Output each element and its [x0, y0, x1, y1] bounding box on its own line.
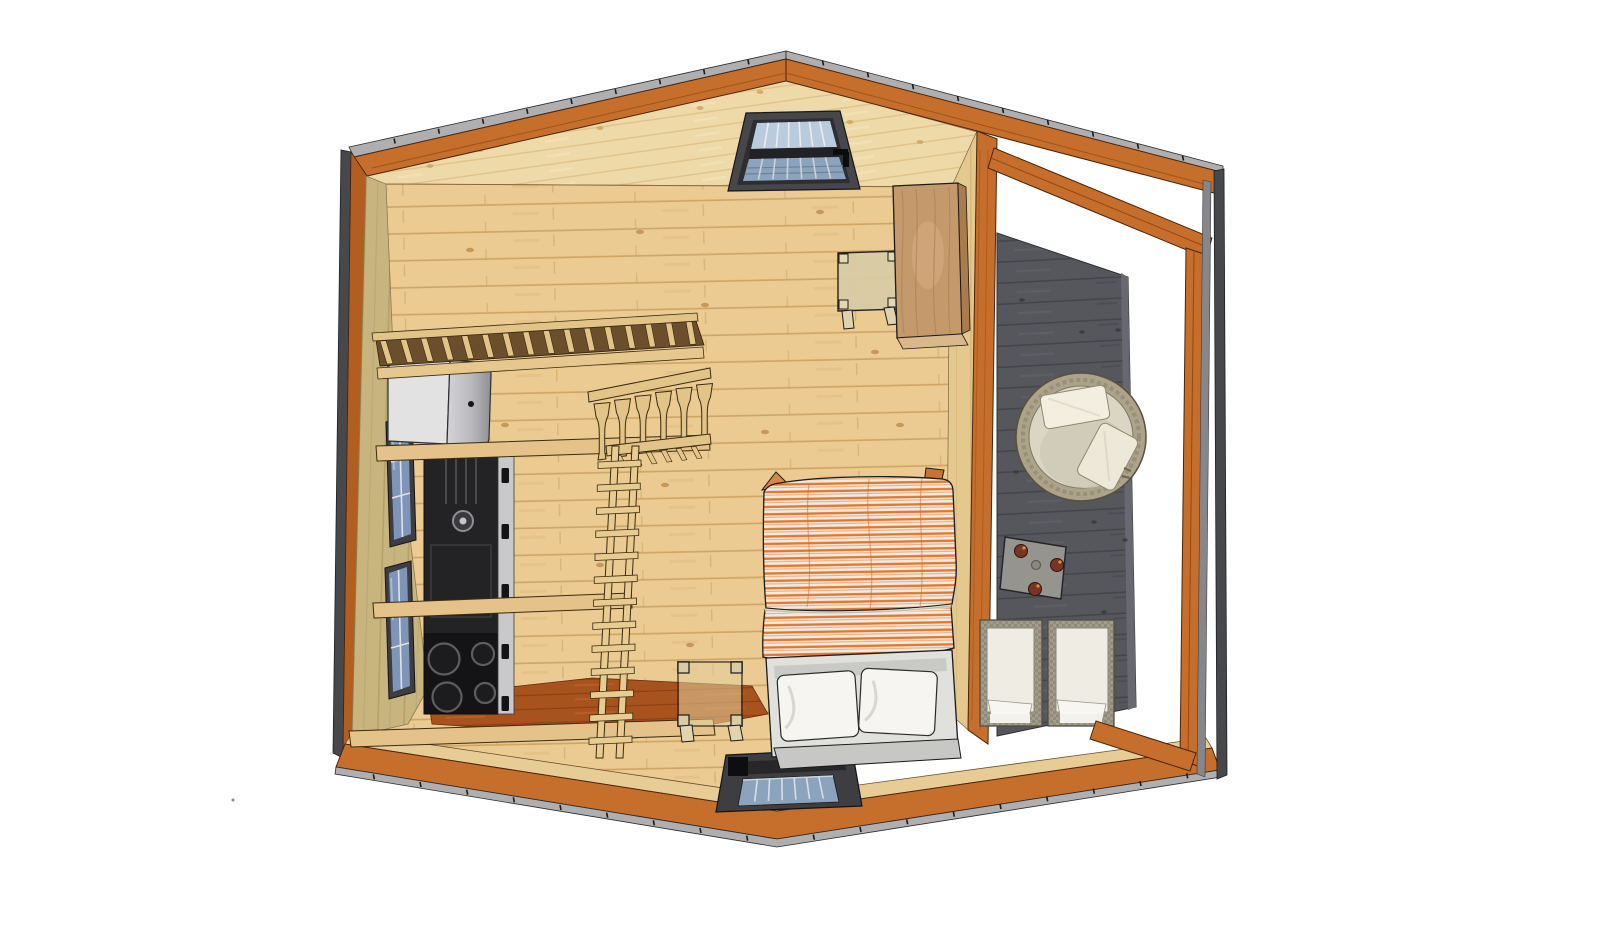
left-window-lower [385, 561, 415, 699]
drawer-handle [502, 468, 510, 483]
roof-tick [860, 827, 861, 832]
roof-tick [1138, 144, 1139, 149]
roof-tick [527, 109, 528, 114]
burner [429, 644, 460, 675]
plank-knot [816, 210, 824, 214]
cabin-floorplan-svg: Gable skylight window [0, 0, 1600, 931]
roof-tick [1140, 781, 1141, 786]
roof-tick [607, 813, 608, 818]
roof-tick [1183, 156, 1184, 161]
range-side-strip [498, 452, 514, 714]
roof-tick [1047, 796, 1048, 801]
plank-knot [701, 303, 709, 307]
deck-table: Deck side table with burner knobs [1000, 537, 1066, 599]
plank-knot [501, 423, 509, 427]
deck-knot [1019, 298, 1025, 302]
roof-tick [483, 119, 484, 124]
knob-pointer [1036, 584, 1039, 587]
roof-tick [438, 129, 439, 134]
deck-knot [1079, 330, 1085, 334]
bench-pillow-left [777, 670, 859, 741]
plank-knot [847, 120, 854, 124]
roof-tick [394, 139, 395, 144]
burner [433, 683, 462, 712]
bench-pillow-right [858, 668, 937, 736]
sink-drain [460, 518, 467, 525]
wardrobe-cabinet: Wardrobe cabinet [893, 183, 970, 349]
plank-knot [896, 423, 904, 427]
plank-knot [871, 350, 879, 354]
floorplan-render: Gable skylight window [0, 0, 1600, 931]
roof-tick [467, 790, 468, 795]
roof-tick [700, 828, 701, 833]
table-foot [680, 725, 694, 742]
plank-knot [636, 230, 644, 234]
roof-tick [823, 60, 824, 65]
burner [475, 683, 495, 703]
roof-tick [1187, 773, 1188, 778]
lounger-left [980, 620, 1042, 726]
bed: Double bed with orange striped duvet Hea… [762, 468, 961, 769]
roof-tick [953, 812, 954, 817]
deck-knot [1091, 520, 1097, 524]
lounger-cushion [987, 628, 1034, 712]
stray-dot [232, 799, 235, 802]
lounger-foot-cushion [990, 714, 1030, 723]
table-leg [678, 715, 689, 726]
roof-tick [513, 797, 514, 802]
roof-tick [659, 79, 660, 84]
gable-skylight-window: Gable skylight window [728, 111, 860, 191]
table-knob [1015, 545, 1028, 558]
roof-tick [907, 819, 908, 824]
deck-knot [1101, 610, 1107, 614]
roof-tick [571, 99, 572, 104]
range-unit [424, 452, 514, 714]
plank-knot [597, 126, 604, 130]
burner [472, 643, 494, 665]
table-leg [678, 662, 689, 673]
plank-knot [697, 106, 704, 110]
roof-tick [1000, 804, 1001, 809]
plank-knot [917, 140, 924, 144]
plank-knot [686, 643, 694, 647]
skylight-mid-rail [749, 147, 839, 159]
roof-tick [653, 820, 654, 825]
plank-knot [427, 164, 434, 168]
roof-tick [1003, 108, 1004, 113]
drawer-handle [502, 644, 510, 659]
knob-pointer [1058, 560, 1061, 563]
desk-leg [839, 300, 848, 309]
plank-knot [466, 248, 474, 252]
plank-knot [596, 563, 604, 567]
plank-knot [661, 483, 669, 487]
skylight-corner-block [728, 757, 748, 776]
drawer-handle [502, 584, 510, 599]
table-knob [1051, 559, 1064, 572]
roof-tick [747, 836, 748, 841]
table-leg [731, 715, 742, 726]
roof-tick [420, 782, 421, 787]
roof-tick [704, 69, 705, 74]
table-foot [728, 725, 743, 741]
fridge-hinge-dot [468, 401, 474, 407]
desk-leg [839, 254, 848, 263]
drawer-handle [502, 524, 510, 539]
table-knob [1029, 583, 1042, 596]
headboard-bench: Headboard bench with two pillows [766, 650, 961, 769]
skylight-handle-arm [843, 152, 849, 167]
deck-knot [1115, 328, 1121, 332]
roof-tick [958, 96, 959, 101]
roof-tick [1093, 132, 1094, 137]
lounger-cushion [1056, 628, 1108, 712]
table-leg [731, 662, 742, 673]
lounger-right [1048, 620, 1114, 726]
roof-tick [373, 774, 374, 779]
deck-knot [1013, 470, 1019, 474]
hot-tub: Round hot tub with towels [1016, 373, 1146, 501]
roof-tick [913, 84, 914, 89]
roof-tick [1093, 789, 1094, 794]
roof-tick [560, 805, 561, 810]
duvet [763, 477, 956, 611]
roof-tick [813, 835, 814, 840]
roof-tick [615, 89, 616, 94]
desk-foot [842, 310, 854, 329]
deck-knot [1122, 538, 1128, 542]
roof-tick [1048, 120, 1049, 125]
table-center-ring [1032, 561, 1041, 570]
roof-tick [868, 72, 869, 77]
mullion [768, 779, 769, 801]
plank-knot [757, 90, 764, 94]
drawer-handle [502, 696, 510, 711]
plank-knot [761, 430, 769, 434]
knob-pointer [1022, 546, 1025, 549]
roof-tick [748, 59, 749, 64]
